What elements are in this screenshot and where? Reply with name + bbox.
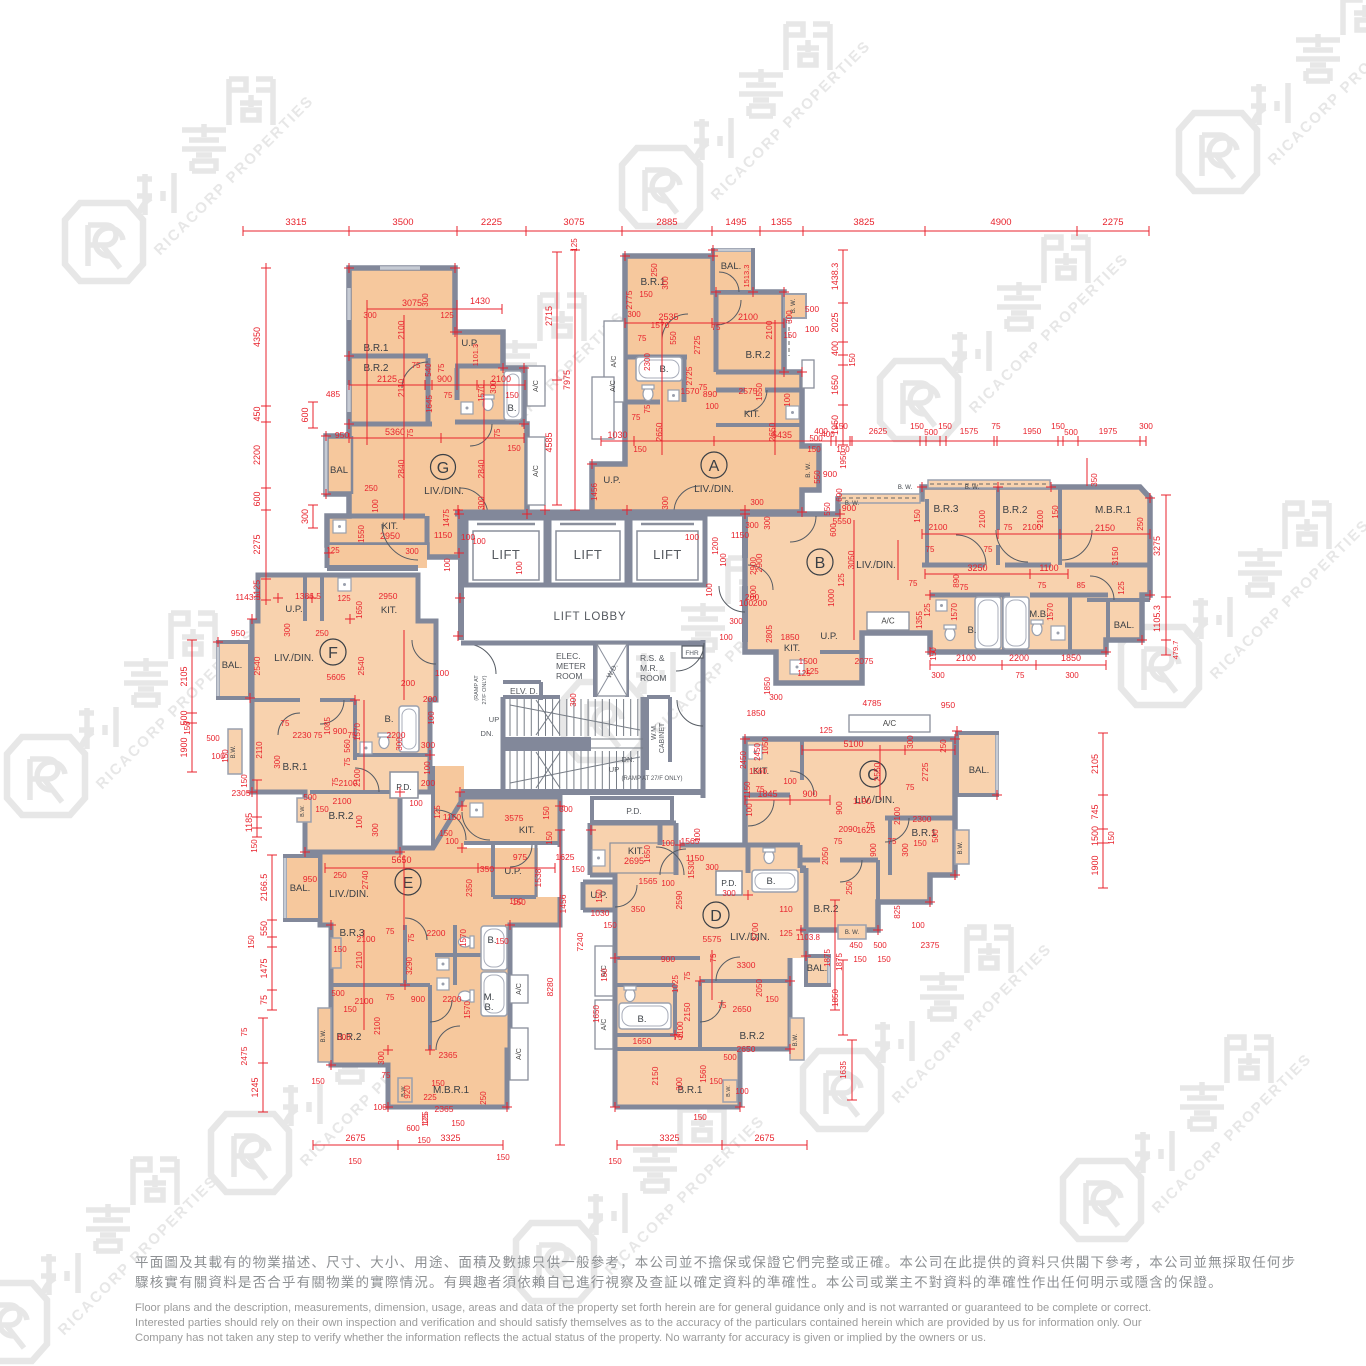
svg-text:150: 150	[451, 1119, 465, 1128]
svg-text:75: 75	[386, 993, 395, 1002]
svg-text:2100: 2100	[357, 934, 376, 944]
svg-text:100: 100	[371, 499, 380, 513]
svg-text:150: 150	[333, 945, 347, 954]
svg-text:B.: B.	[968, 625, 977, 636]
svg-text:125: 125	[923, 603, 932, 617]
svg-text:B.R.3: B.R.3	[933, 504, 958, 515]
svg-text:ELEC.: ELEC.	[556, 651, 581, 661]
svg-text:1650: 1650	[643, 845, 652, 863]
svg-text:1150: 1150	[434, 530, 453, 540]
svg-text:3075: 3075	[563, 217, 584, 228]
svg-text:100: 100	[409, 799, 423, 808]
svg-text:150: 150	[315, 805, 329, 814]
svg-text:3250: 3250	[967, 563, 987, 573]
svg-text:600: 600	[829, 523, 838, 537]
svg-text:100: 100	[435, 668, 449, 678]
svg-text:75: 75	[259, 995, 269, 1005]
svg-text:500: 500	[303, 793, 317, 802]
svg-text:600: 600	[406, 1124, 420, 1133]
svg-text:5360: 5360	[385, 427, 405, 437]
svg-text:1000: 1000	[827, 589, 836, 607]
svg-text:150: 150	[571, 865, 585, 874]
svg-text:2300: 2300	[643, 353, 652, 371]
svg-text:2450: 2450	[739, 751, 748, 769]
svg-text:250: 250	[845, 881, 854, 895]
svg-text:1200: 1200	[711, 537, 720, 555]
svg-text:1570: 1570	[950, 603, 959, 621]
svg-text:2650: 2650	[733, 1004, 752, 1014]
svg-text:BAL.: BAL.	[1114, 620, 1135, 631]
svg-text:27/F ONLY): 27/F ONLY)	[482, 675, 488, 704]
svg-text:125: 125	[570, 238, 579, 252]
svg-text:2100: 2100	[978, 510, 987, 528]
svg-text:125: 125	[326, 546, 340, 555]
svg-text:B.R.2: B.R.2	[1002, 505, 1027, 516]
svg-text:150: 150	[783, 331, 797, 340]
svg-text:125: 125	[421, 1111, 430, 1125]
svg-text:100: 100	[911, 921, 925, 930]
svg-text:75: 75	[493, 428, 502, 437]
svg-text:3825: 3825	[853, 217, 874, 228]
svg-text:1530: 1530	[687, 861, 696, 879]
svg-text:2950: 2950	[379, 591, 398, 601]
svg-text:250: 250	[315, 629, 329, 638]
svg-text:5575: 5575	[703, 934, 722, 944]
svg-text:2090: 2090	[839, 824, 858, 834]
svg-text:950: 950	[303, 874, 317, 884]
svg-text:BAL.: BAL.	[222, 660, 243, 671]
svg-text:2715: 2715	[544, 306, 554, 326]
svg-text:75: 75	[683, 971, 692, 980]
svg-text:2725: 2725	[684, 366, 694, 385]
svg-text:300: 300	[750, 498, 764, 507]
svg-text:100: 100	[427, 711, 436, 725]
svg-text:300: 300	[1139, 421, 1153, 431]
svg-text:100: 100	[705, 583, 714, 597]
svg-text:B.: B.	[767, 876, 776, 887]
svg-text:600: 600	[300, 407, 310, 422]
svg-text:900: 900	[802, 789, 817, 799]
svg-text:540: 540	[424, 363, 433, 377]
svg-text:2166.5: 2166.5	[259, 874, 269, 902]
svg-text:479.7: 479.7	[1171, 641, 1180, 660]
svg-text:950: 950	[231, 628, 245, 638]
svg-text:100: 100	[423, 761, 432, 775]
svg-text:300: 300	[1065, 671, 1079, 680]
svg-text:450: 450	[849, 941, 863, 950]
svg-text:350: 350	[1090, 473, 1099, 487]
svg-text:1950: 1950	[839, 451, 848, 469]
svg-text:1030: 1030	[591, 908, 610, 918]
svg-text:300: 300	[675, 1077, 684, 1091]
svg-text:B.: B.	[385, 714, 394, 725]
svg-text:500: 500	[931, 829, 940, 843]
svg-text:KIT.: KIT.	[519, 825, 535, 836]
svg-text:75: 75	[991, 421, 1001, 431]
svg-text:400: 400	[830, 341, 840, 356]
svg-text:250: 250	[364, 484, 378, 493]
svg-text:100: 100	[705, 402, 719, 411]
svg-text:550: 550	[813, 470, 822, 484]
svg-text:125: 125	[440, 311, 454, 320]
svg-text:B.: B.	[508, 403, 517, 414]
svg-text:150: 150	[1107, 831, 1116, 845]
svg-text:150: 150	[509, 897, 523, 906]
svg-text:3315: 3315	[285, 217, 306, 228]
svg-text:2050: 2050	[755, 979, 764, 997]
svg-text:1625: 1625	[556, 852, 575, 862]
svg-text:500: 500	[805, 304, 819, 314]
svg-text:3075: 3075	[402, 298, 422, 308]
svg-text:125: 125	[797, 669, 811, 678]
svg-text:745: 745	[1090, 804, 1100, 819]
svg-text:75: 75	[756, 785, 765, 794]
svg-text:950: 950	[941, 700, 955, 710]
svg-text:1500: 1500	[1090, 826, 1100, 846]
svg-text:550: 550	[669, 331, 678, 345]
svg-text:3275: 3275	[1152, 536, 1162, 556]
svg-text:4585: 4585	[544, 432, 554, 452]
svg-text:3300: 3300	[737, 960, 756, 970]
svg-text:CABINET: CABINET	[659, 722, 666, 753]
svg-text:1355: 1355	[915, 611, 924, 629]
svg-text:75: 75	[709, 953, 718, 962]
svg-text:300: 300	[395, 737, 404, 751]
svg-text:300: 300	[283, 623, 292, 637]
svg-text:1570: 1570	[459, 929, 468, 947]
svg-text:500: 500	[924, 427, 938, 437]
svg-text:150: 150	[348, 1157, 362, 1166]
svg-text:P.D.: P.D.	[721, 878, 736, 888]
svg-text:LIV./DIN.: LIV./DIN.	[274, 653, 314, 664]
svg-text:2350: 2350	[465, 879, 474, 897]
svg-text:150: 150	[183, 721, 192, 735]
svg-text:1150: 1150	[731, 530, 750, 540]
svg-text:100: 100	[745, 803, 754, 817]
svg-text:4900: 4900	[990, 217, 1011, 228]
svg-text:2050: 2050	[821, 847, 830, 865]
svg-text:FHR: FHR	[685, 650, 699, 657]
svg-text:75: 75	[834, 837, 843, 846]
svg-text:BAL: BAL	[330, 465, 348, 476]
svg-text:2200: 2200	[1009, 653, 1029, 663]
svg-text:1438.3: 1438.3	[830, 263, 840, 291]
svg-text:100: 100	[783, 777, 797, 786]
svg-text:100: 100	[783, 393, 792, 407]
svg-text:1570: 1570	[1046, 603, 1055, 621]
svg-text:900: 900	[869, 843, 878, 857]
svg-text:ROOM: ROOM	[640, 673, 666, 683]
svg-text:B.W.: B.W.	[321, 1029, 327, 1042]
svg-text:METER: METER	[556, 661, 586, 671]
svg-text:150: 150	[595, 889, 604, 903]
svg-text:85: 85	[1077, 581, 1086, 590]
svg-text:450: 450	[252, 406, 262, 421]
svg-text:Company has not taken any step: Company has not taken any step to verify…	[135, 1332, 986, 1344]
svg-text:1538: 1538	[533, 868, 543, 887]
svg-text:2695: 2695	[624, 856, 644, 866]
svg-text:A/C: A/C	[533, 465, 540, 477]
svg-text:1650: 1650	[830, 375, 840, 395]
svg-text:1560: 1560	[699, 1065, 708, 1083]
svg-text:75: 75	[960, 583, 969, 592]
svg-text:A/C: A/C	[610, 380, 617, 392]
svg-text:2540: 2540	[356, 656, 366, 675]
svg-text:4350: 4350	[252, 327, 262, 347]
svg-text:1245: 1245	[250, 1077, 260, 1097]
svg-text:125: 125	[819, 726, 833, 735]
svg-text:75: 75	[888, 837, 897, 846]
svg-text:200: 200	[421, 778, 435, 788]
svg-text:150: 150	[913, 839, 927, 848]
svg-text:ELV. D.: ELV. D.	[510, 686, 538, 696]
svg-text:2100: 2100	[929, 522, 948, 532]
svg-text:B.W.: B.W.	[793, 1033, 799, 1046]
svg-text:B.W.: B.W.	[726, 1085, 732, 1097]
svg-text:250: 250	[650, 263, 659, 277]
svg-text:150: 150	[877, 955, 891, 964]
svg-text:150: 150	[505, 391, 519, 400]
svg-text:125: 125	[337, 594, 351, 603]
svg-text:1565: 1565	[639, 876, 658, 886]
svg-text:300: 300	[421, 740, 435, 750]
svg-text:1875: 1875	[835, 953, 844, 971]
svg-text:250: 250	[1136, 517, 1145, 531]
svg-text:150: 150	[834, 421, 848, 431]
svg-text:3575: 3575	[505, 813, 524, 823]
svg-text:200: 200	[423, 694, 437, 704]
svg-text:150: 150	[247, 935, 256, 949]
svg-text:B.W.: B.W.	[231, 745, 237, 758]
svg-text:825: 825	[893, 905, 902, 919]
svg-text:600: 600	[252, 491, 262, 506]
svg-text:3325: 3325	[440, 1133, 460, 1143]
svg-text:2725: 2725	[920, 762, 930, 781]
svg-text:M.R.: M.R.	[640, 663, 658, 673]
svg-text:KIT.: KIT.	[744, 409, 760, 420]
svg-text:300: 300	[705, 863, 719, 872]
svg-text:LIV./DIN.: LIV./DIN.	[424, 486, 464, 497]
svg-text:1150: 1150	[743, 781, 752, 799]
svg-text:75: 75	[382, 1071, 391, 1080]
svg-text:P.D.: P.D.	[396, 782, 411, 792]
svg-text:2150: 2150	[650, 1066, 660, 1085]
svg-text:DN.: DN.	[622, 755, 635, 764]
svg-text:2305: 2305	[232, 788, 251, 798]
svg-text:75: 75	[1038, 581, 1047, 590]
svg-text:2100: 2100	[333, 796, 352, 806]
svg-text:500: 500	[331, 989, 345, 998]
svg-text:1025: 1025	[671, 975, 680, 993]
svg-text:2540: 2540	[252, 656, 262, 675]
svg-text:U.P.: U.P.	[285, 604, 302, 615]
svg-text:200: 200	[401, 678, 415, 688]
svg-text:500: 500	[206, 734, 220, 743]
svg-text:2100: 2100	[1036, 510, 1045, 528]
svg-text:2900: 2900	[749, 557, 758, 575]
svg-text:A/C: A/C	[881, 617, 895, 626]
svg-text:2365: 2365	[439, 1050, 458, 1060]
svg-text:2675: 2675	[754, 1133, 774, 1143]
svg-text:4785: 4785	[863, 698, 882, 708]
svg-text:5605: 5605	[327, 672, 346, 682]
svg-text:75: 75	[444, 391, 453, 400]
svg-text:2105: 2105	[179, 666, 189, 686]
svg-text:125: 125	[433, 805, 442, 819]
svg-text:2775: 2775	[624, 290, 634, 309]
svg-text:75: 75	[712, 323, 721, 332]
svg-text:(RAMP AT 27/F ONLY): (RAMP AT 27/F ONLY)	[622, 776, 683, 782]
svg-text:75: 75	[343, 757, 352, 766]
svg-text:A/C: A/C	[611, 356, 618, 368]
svg-text:2225: 2225	[481, 217, 502, 228]
svg-text:2110: 2110	[355, 951, 364, 969]
svg-text:2275: 2275	[252, 534, 262, 554]
svg-text:100: 100	[805, 324, 819, 334]
svg-text:150: 150	[496, 1153, 510, 1162]
svg-text:150: 150	[495, 937, 509, 946]
svg-text:1575: 1575	[960, 426, 979, 436]
svg-text:B.W.: B.W.	[300, 805, 306, 817]
svg-text:150: 150	[910, 421, 924, 431]
svg-text:2105: 2105	[1090, 754, 1100, 774]
svg-text:225: 225	[423, 1093, 437, 1102]
svg-text:150: 150	[600, 968, 609, 982]
svg-text:2125: 2125	[377, 374, 397, 384]
svg-text:2100: 2100	[738, 312, 758, 322]
svg-text:150: 150	[913, 509, 922, 523]
svg-text:300: 300	[273, 755, 282, 769]
svg-text:75: 75	[866, 821, 875, 830]
svg-text:2110: 2110	[255, 741, 264, 759]
svg-text:2625: 2625	[869, 426, 888, 436]
svg-text:150: 150	[417, 1136, 431, 1145]
svg-text:3500: 3500	[392, 217, 413, 228]
svg-text:150: 150	[221, 749, 230, 763]
svg-text:2150: 2150	[1095, 523, 1115, 533]
svg-text:300: 300	[421, 293, 430, 307]
svg-text:75: 75	[1016, 671, 1025, 680]
svg-text:75: 75	[437, 363, 446, 372]
svg-text:75: 75	[412, 361, 421, 370]
svg-text:150: 150	[848, 353, 857, 367]
svg-text:Floor plans and the descriptio: Floor plans and the description, measure…	[135, 1302, 1151, 1314]
svg-text:2365: 2365	[435, 1104, 454, 1114]
svg-text:150: 150	[240, 774, 249, 788]
svg-text:B. W.: B. W.	[805, 462, 812, 478]
svg-text:G: G	[437, 460, 449, 477]
svg-text:400: 400	[821, 430, 835, 439]
svg-text:A/C: A/C	[601, 1019, 608, 1031]
svg-text:1950: 1950	[1023, 426, 1042, 436]
svg-text:100: 100	[719, 553, 728, 567]
svg-text:LIFT: LIFT	[492, 547, 521, 562]
svg-text:75: 75	[1004, 523, 1013, 532]
svg-text:150: 150	[938, 421, 952, 431]
svg-text:150: 150	[639, 290, 653, 299]
svg-text:R.S. &: R.S. &	[640, 653, 665, 663]
svg-text:1513.3: 1513.3	[742, 265, 751, 288]
svg-text:3325: 3325	[659, 1133, 679, 1143]
svg-text:7975: 7975	[562, 370, 572, 390]
svg-text:(RAMP AT: (RAMP AT	[474, 675, 480, 701]
svg-text:1645: 1645	[425, 395, 434, 413]
svg-text:2100: 2100	[956, 653, 976, 663]
svg-text:B.: B.	[485, 1002, 494, 1013]
svg-text:B.: B.	[638, 1014, 647, 1025]
svg-text:B.R.1: B.R.1	[282, 762, 307, 773]
svg-text:900: 900	[842, 503, 856, 513]
svg-text:A/C: A/C	[516, 983, 523, 995]
svg-text:150: 150	[853, 955, 867, 964]
svg-text:975: 975	[513, 852, 527, 862]
svg-text:DN.: DN.	[481, 729, 494, 738]
svg-text:500: 500	[873, 941, 887, 950]
svg-text:150: 150	[807, 445, 821, 454]
svg-text:A/C: A/C	[516, 1048, 523, 1060]
svg-text:600: 600	[337, 1033, 351, 1042]
svg-text:BAL.: BAL.	[721, 261, 742, 272]
svg-text:2805: 2805	[765, 625, 774, 643]
svg-text:900: 900	[411, 994, 425, 1004]
svg-text:300: 300	[901, 843, 910, 857]
svg-text:100: 100	[461, 532, 475, 542]
svg-text:A/C: A/C	[883, 719, 897, 728]
svg-text:900: 900	[333, 726, 347, 736]
svg-text:ROOM: ROOM	[556, 671, 582, 681]
svg-text:125: 125	[837, 573, 846, 587]
svg-text:1560: 1560	[749, 767, 767, 776]
svg-text:1150: 1150	[443, 812, 462, 822]
svg-text:UP: UP	[489, 715, 499, 724]
svg-text:1456: 1456	[558, 894, 568, 913]
svg-text:900: 900	[437, 374, 452, 384]
svg-text:2200: 2200	[427, 928, 446, 938]
svg-text:BAL.: BAL.	[969, 765, 990, 776]
svg-text:BAL.: BAL.	[290, 883, 311, 894]
svg-text:LIFT: LIFT	[653, 547, 682, 562]
svg-text:75: 75	[632, 413, 641, 422]
svg-text:1850: 1850	[1061, 653, 1081, 663]
svg-text:1430: 1430	[470, 296, 490, 306]
svg-text:900: 900	[661, 954, 675, 964]
svg-text:平面圖及其載有的物業描述、尺寸、大小、用途、面積及數據只供一: 平面圖及其載有的物業描述、尺寸、大小、用途、面積及數據只供一般參考，本公司並不擔…	[135, 1254, 1296, 1270]
svg-text:P.D.: P.D.	[626, 806, 641, 816]
svg-text:150: 150	[250, 839, 259, 853]
svg-text:Interested parties should rely: Interested parties should rely on their …	[135, 1317, 1142, 1329]
svg-text:1456: 1456	[590, 483, 599, 501]
svg-text:1185: 1185	[244, 813, 254, 832]
svg-text:2275: 2275	[1102, 217, 1123, 228]
svg-text:75: 75	[386, 927, 395, 936]
svg-text:LIFT LOBBY: LIFT LOBBY	[554, 611, 627, 623]
svg-text:1850: 1850	[747, 708, 766, 718]
svg-text:300: 300	[722, 889, 736, 898]
svg-text:2100: 2100	[893, 807, 902, 825]
svg-text:1900: 1900	[1090, 855, 1100, 875]
svg-text:1635: 1635	[839, 1061, 848, 1079]
svg-text:75: 75	[643, 404, 652, 413]
svg-text:1570: 1570	[651, 320, 670, 330]
svg-text:100: 100	[739, 598, 753, 608]
svg-text:1050: 1050	[761, 737, 770, 755]
svg-text:1650: 1650	[592, 1005, 601, 1023]
svg-text:2200: 2200	[443, 994, 462, 1004]
svg-text:350: 350	[631, 904, 645, 914]
svg-text:1386.5: 1386.5	[295, 591, 321, 601]
svg-text:75: 75	[718, 1001, 727, 1010]
svg-text:300: 300	[489, 380, 498, 394]
